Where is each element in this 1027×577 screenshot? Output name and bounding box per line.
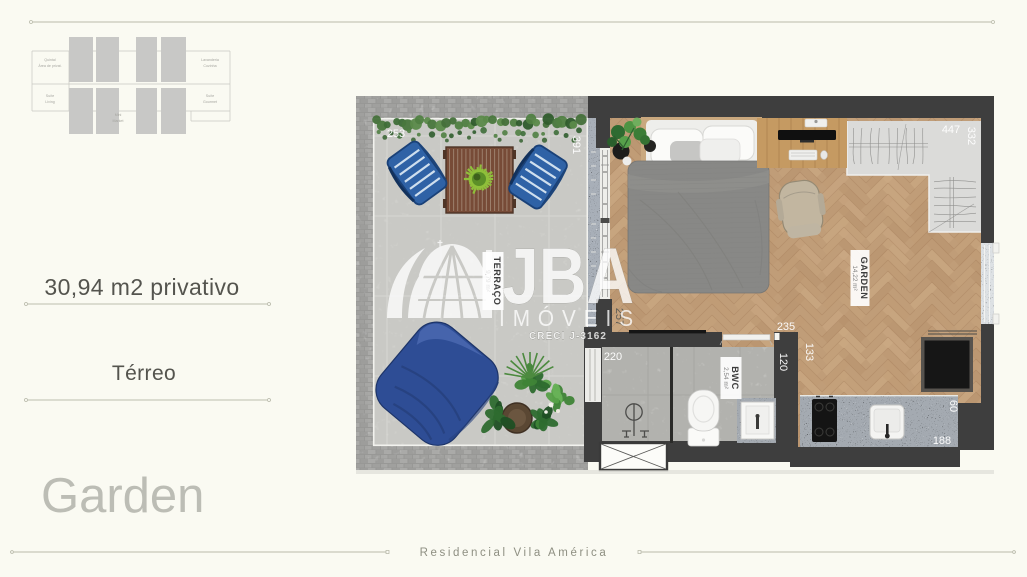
svg-text:188: 188 — [933, 435, 951, 447]
svg-text:220: 220 — [604, 351, 622, 363]
svg-text:IMÓVEIS: IMÓVEIS — [499, 305, 641, 331]
svg-text:Market: Market — [113, 119, 124, 123]
svg-text:Suíte: Suíte — [206, 94, 214, 98]
svg-text:253: 253 — [387, 128, 405, 140]
svg-text:60: 60 — [947, 400, 959, 412]
svg-text:Quintal: Quintal — [44, 58, 56, 62]
svg-text:Gourmet: Gourmet — [203, 100, 217, 104]
svg-text:Térreo: Térreo — [112, 362, 176, 385]
svg-text:Lavanderia: Lavanderia — [201, 58, 219, 62]
svg-text:2,54 m²: 2,54 m² — [722, 367, 729, 389]
svg-text:30,94 m2 privativo: 30,94 m2 privativo — [44, 274, 239, 300]
svg-text:235: 235 — [777, 321, 795, 333]
svg-text:14,22 m²: 14,22 m² — [851, 265, 858, 290]
svg-text:BWC: BWC — [730, 366, 740, 389]
svg-text:Residencial Vila América: Residencial Vila América — [420, 547, 609, 559]
svg-text:TERRAÇO: TERRAÇO — [492, 257, 502, 306]
svg-text:Living: Living — [45, 100, 54, 104]
svg-text:Garden: Garden — [41, 469, 204, 523]
svg-text:391: 391 — [570, 136, 582, 154]
svg-text:447: 447 — [942, 124, 960, 136]
svg-text:Suíte: Suíte — [46, 94, 54, 98]
svg-text:Área de privat.: Área de privat. — [38, 64, 61, 68]
svg-text:133: 133 — [803, 343, 815, 361]
svg-text:332: 332 — [965, 127, 977, 145]
svg-text:Cozinha: Cozinha — [203, 64, 216, 68]
svg-text:GARDEN: GARDEN — [859, 257, 869, 300]
svg-text:CRECI J-3162: CRECI J-3162 — [529, 330, 607, 342]
svg-text:120: 120 — [777, 353, 789, 371]
svg-text:Mini: Mini — [115, 113, 122, 117]
